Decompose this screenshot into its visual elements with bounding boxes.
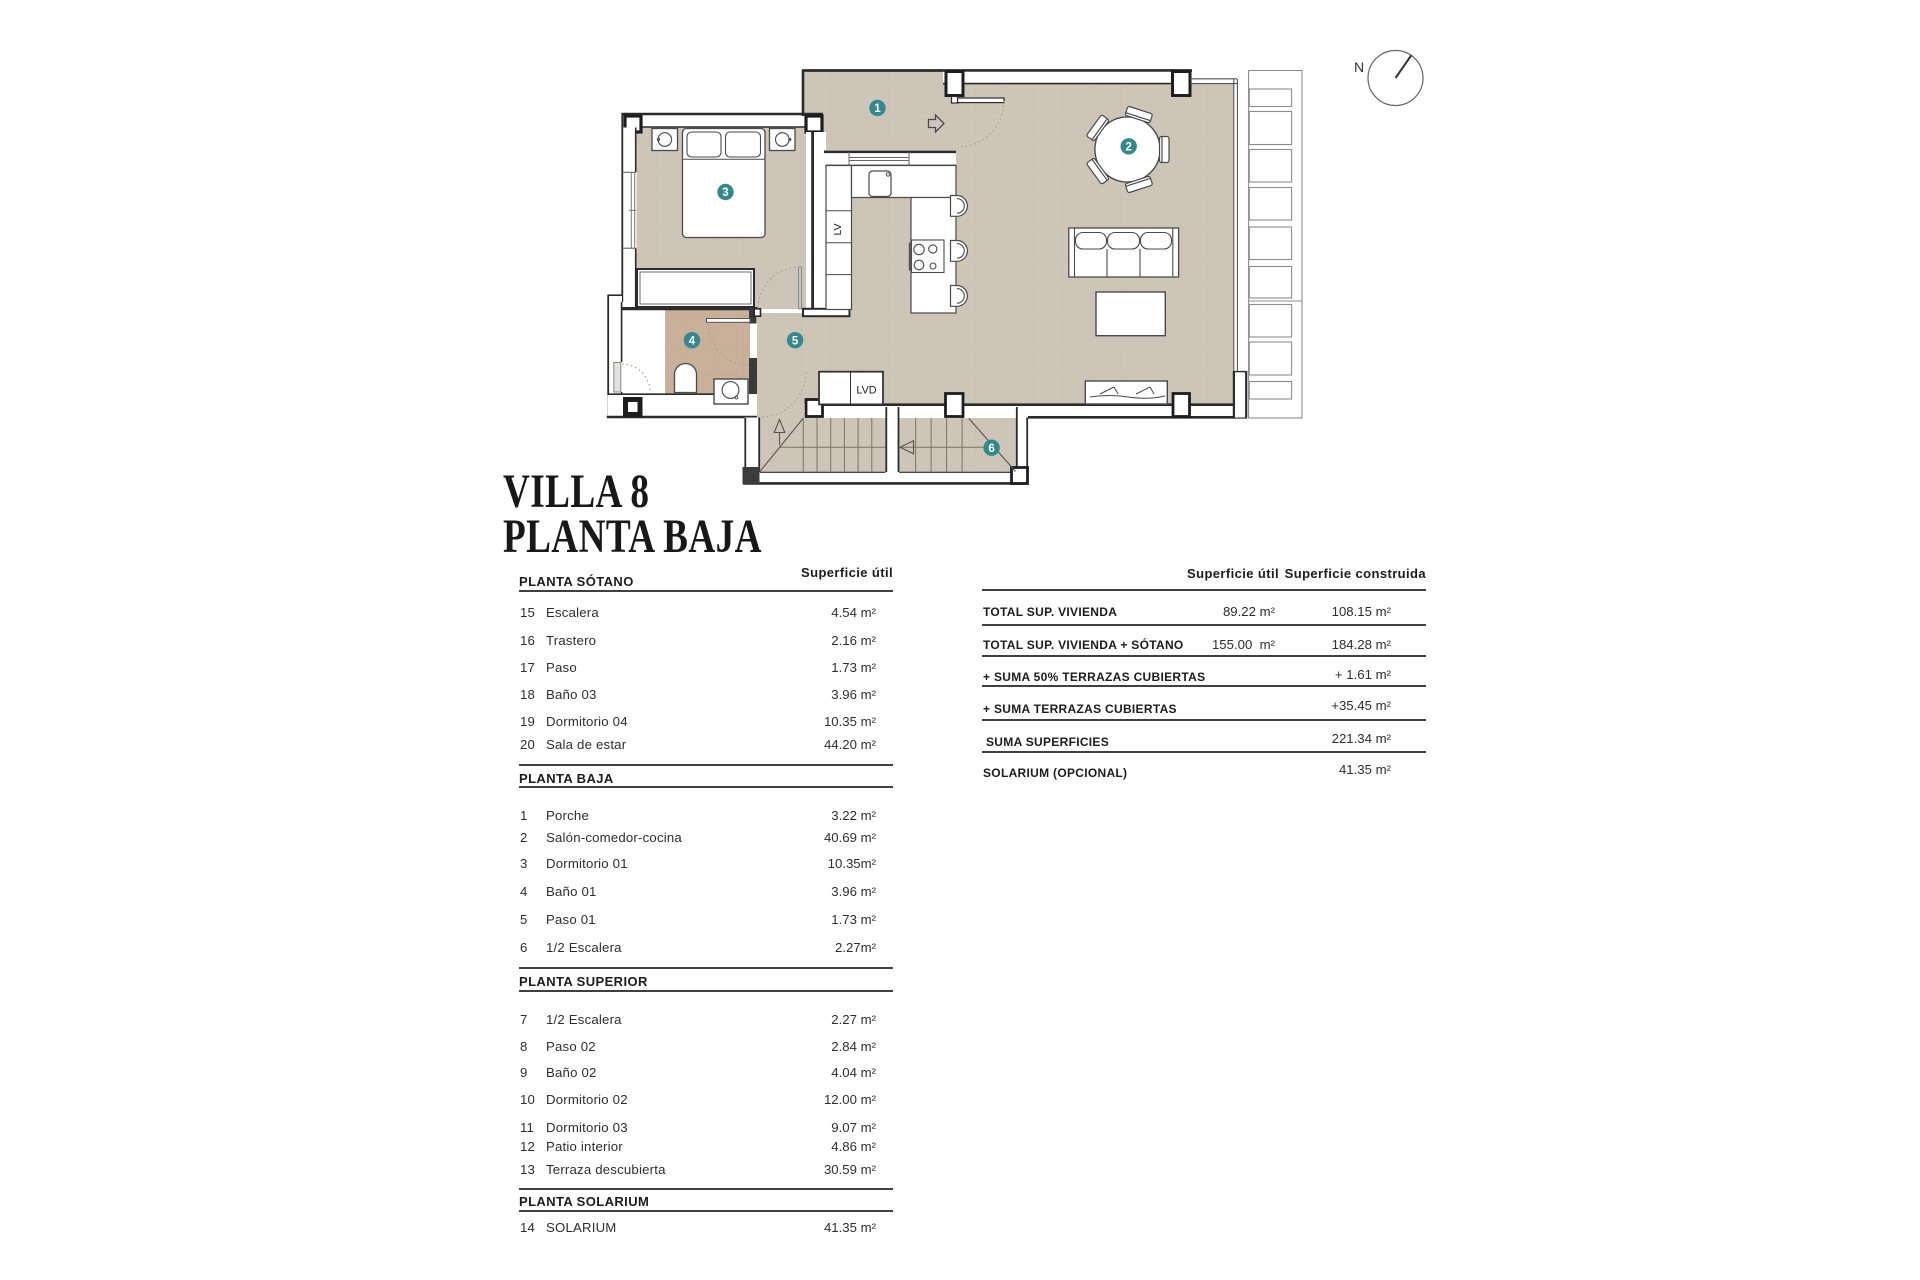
svg-text:4: 4 — [689, 335, 696, 347]
svg-text:LVD: LVD — [856, 385, 876, 397]
svg-text:6: 6 — [988, 443, 994, 455]
svg-text:3: 3 — [722, 187, 728, 199]
svg-text:1: 1 — [874, 103, 881, 115]
svg-text:LV: LV — [832, 223, 844, 235]
svg-text:2: 2 — [1125, 142, 1131, 154]
svg-text:5: 5 — [792, 335, 799, 347]
svg-text:N: N — [1354, 59, 1364, 75]
